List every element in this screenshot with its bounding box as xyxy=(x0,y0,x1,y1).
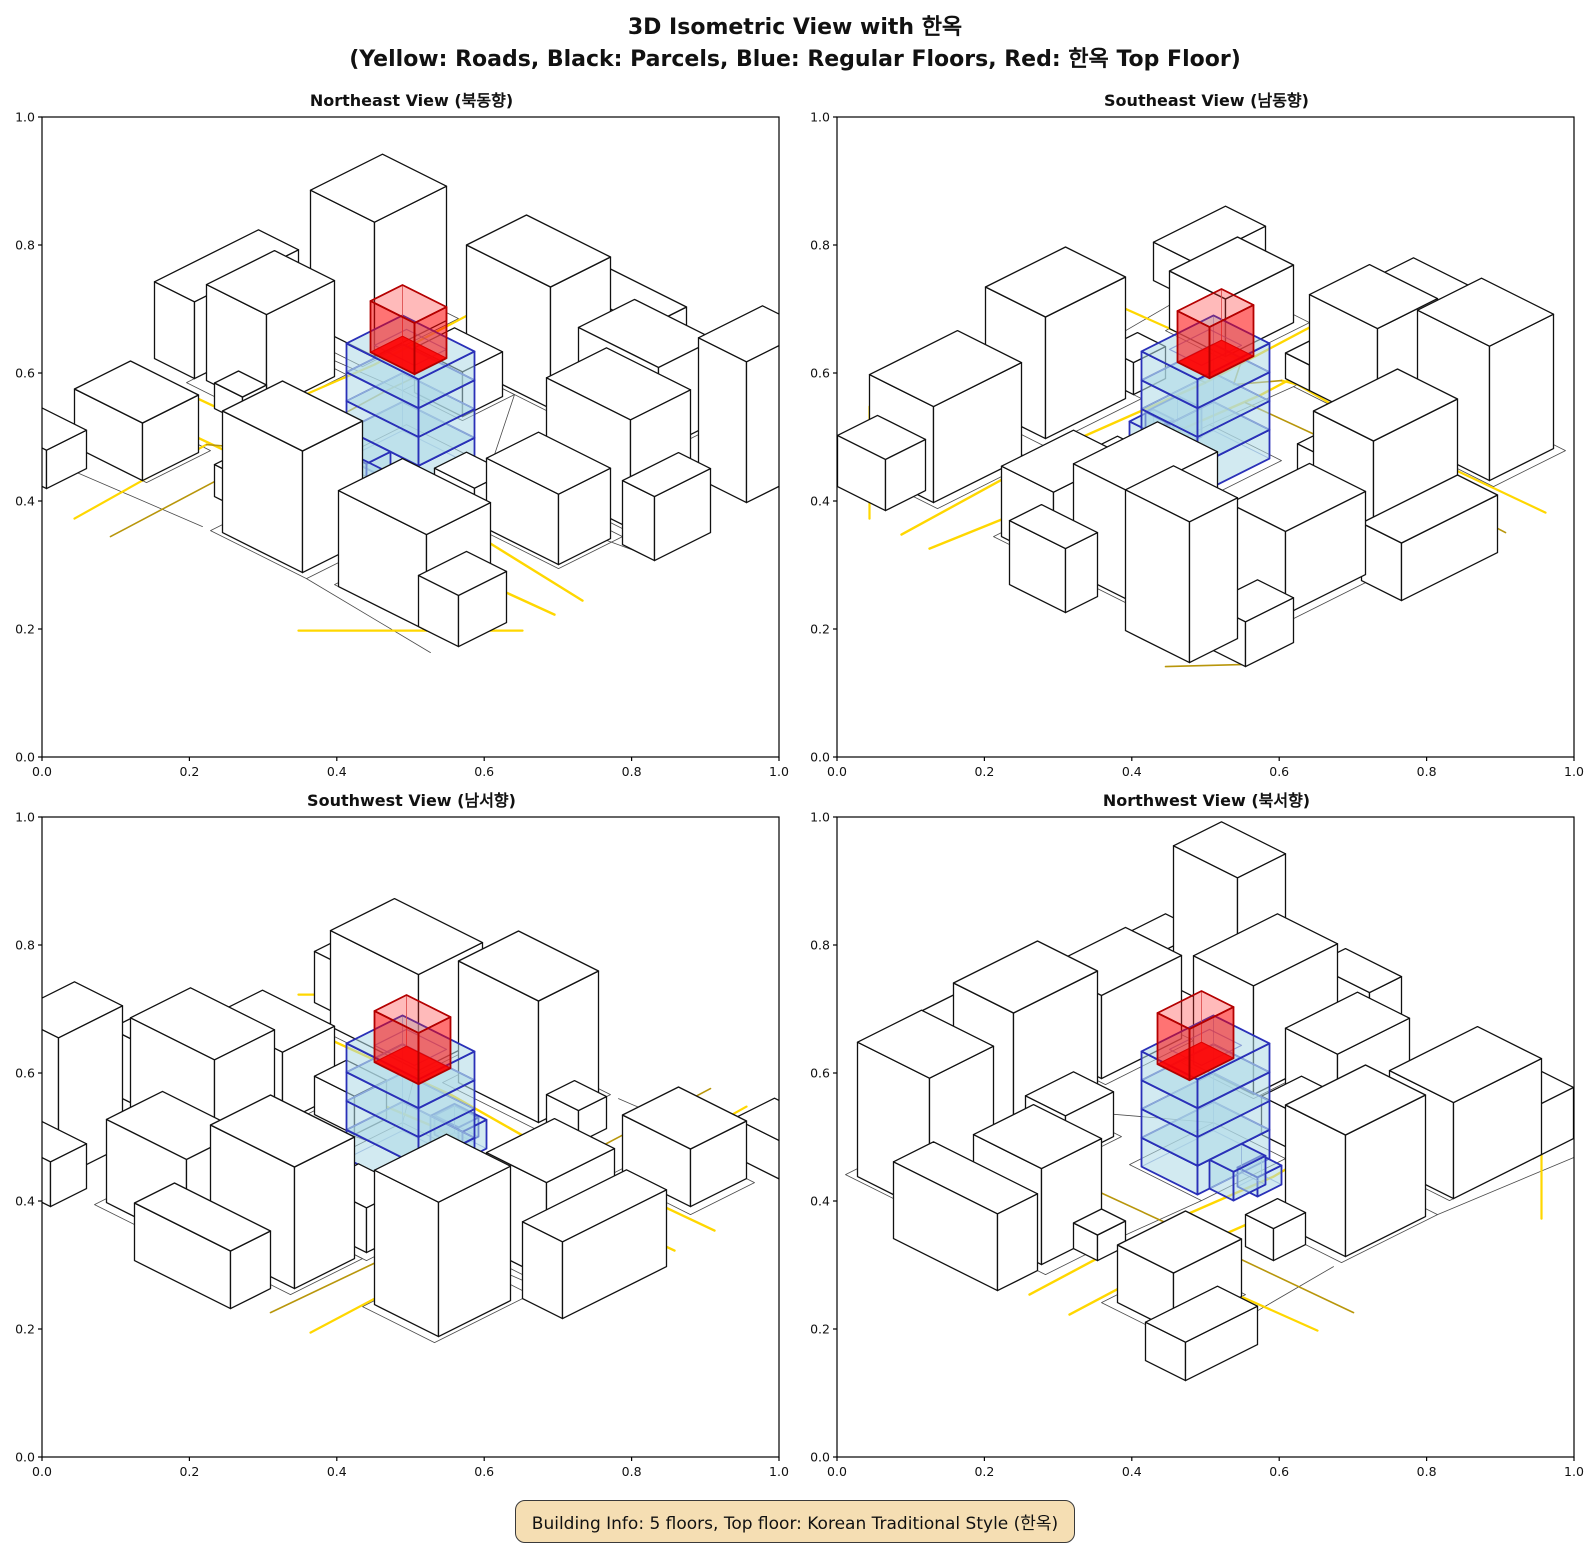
svg-text:1.0: 1.0 xyxy=(1564,764,1584,779)
view-svg-southwest: 0.00.00.20.20.40.40.60.60.80.81.01.0 xyxy=(0,812,795,1490)
figure: 3D Isometric View with 한옥 (Yellow: Roads… xyxy=(0,0,1590,1543)
svg-text:1.0: 1.0 xyxy=(810,112,830,125)
svg-text:0.8: 0.8 xyxy=(810,237,830,252)
svg-text:0.4: 0.4 xyxy=(810,1193,830,1208)
svg-text:0.2: 0.2 xyxy=(810,1321,830,1336)
svg-text:0.6: 0.6 xyxy=(1269,764,1289,779)
svg-text:0.8: 0.8 xyxy=(622,1464,642,1479)
svg-text:0.6: 0.6 xyxy=(1269,1464,1289,1479)
subplot-northwest: Northwest View (북서향) 0.00.00.20.20.40.40… xyxy=(795,790,1590,1490)
svg-text:0.6: 0.6 xyxy=(15,365,35,380)
svg-text:1.0: 1.0 xyxy=(769,1464,789,1479)
svg-text:0.4: 0.4 xyxy=(15,1193,35,1208)
svg-text:0.0: 0.0 xyxy=(810,749,830,764)
subplot-southwest: Southwest View (남서향) 0.00.00.20.20.40.40… xyxy=(0,790,795,1490)
svg-text:0.2: 0.2 xyxy=(179,1464,199,1479)
svg-text:0.0: 0.0 xyxy=(15,1449,35,1464)
svg-text:1.0: 1.0 xyxy=(810,812,830,825)
subplot-northeast: Northeast View (북동향) 0.00.00.20.20.40.40… xyxy=(0,90,795,790)
figure-title: 3D Isometric View with 한옥 (Yellow: Roads… xyxy=(0,0,1590,76)
svg-text:0.8: 0.8 xyxy=(15,937,35,952)
svg-text:0.6: 0.6 xyxy=(810,365,830,380)
svg-text:1.0: 1.0 xyxy=(15,812,35,825)
svg-text:0.8: 0.8 xyxy=(810,937,830,952)
svg-text:0.2: 0.2 xyxy=(810,621,830,636)
svg-text:0.0: 0.0 xyxy=(810,1449,830,1464)
svg-text:0.6: 0.6 xyxy=(474,1464,494,1479)
svg-text:1.0: 1.0 xyxy=(769,764,789,779)
building-info-box: Building Info: 5 floors, Top floor: Kore… xyxy=(515,1500,1075,1543)
svg-text:0.2: 0.2 xyxy=(179,764,199,779)
subplot-title-southwest: Southwest View (남서향) xyxy=(0,790,795,812)
svg-text:0.6: 0.6 xyxy=(15,1065,35,1080)
svg-text:0.4: 0.4 xyxy=(327,764,347,779)
view-svg-southeast: 0.00.00.20.20.40.40.60.60.80.81.01.0 xyxy=(795,112,1590,790)
view-svg-northwest: 0.00.00.20.20.40.40.60.60.80.81.01.0 xyxy=(795,812,1590,1490)
svg-text:0.0: 0.0 xyxy=(32,764,52,779)
svg-text:0.6: 0.6 xyxy=(810,1065,830,1080)
svg-text:0.0: 0.0 xyxy=(15,749,35,764)
svg-text:0.4: 0.4 xyxy=(810,493,830,508)
subplot-title-northeast: Northeast View (북동향) xyxy=(0,90,795,112)
svg-text:0.0: 0.0 xyxy=(827,1464,847,1479)
svg-text:0.2: 0.2 xyxy=(974,764,994,779)
svg-text:0.4: 0.4 xyxy=(15,493,35,508)
svg-text:0.4: 0.4 xyxy=(1122,764,1142,779)
subplot-southeast: Southeast View (남동향) 0.00.00.20.20.40.40… xyxy=(795,90,1590,790)
svg-text:1.0: 1.0 xyxy=(15,112,35,125)
svg-text:1.0: 1.0 xyxy=(1564,1464,1584,1479)
svg-text:0.8: 0.8 xyxy=(15,237,35,252)
figure-title-line1: 3D Isometric View with 한옥 xyxy=(0,12,1590,44)
svg-text:0.2: 0.2 xyxy=(15,621,35,636)
building-info-text: Building Info: 5 floors, Top floor: Kore… xyxy=(532,1514,1058,1534)
view-svg-northeast: 0.00.00.20.20.40.40.60.60.80.81.01.0 xyxy=(0,112,795,790)
svg-text:0.8: 0.8 xyxy=(1417,1464,1437,1479)
svg-text:0.0: 0.0 xyxy=(32,1464,52,1479)
subplot-title-southeast: Southeast View (남동향) xyxy=(795,90,1590,112)
svg-text:0.4: 0.4 xyxy=(327,1464,347,1479)
subplot-title-northwest: Northwest View (북서향) xyxy=(795,790,1590,812)
svg-text:0.0: 0.0 xyxy=(827,764,847,779)
svg-text:0.2: 0.2 xyxy=(15,1321,35,1336)
svg-text:0.4: 0.4 xyxy=(1122,1464,1142,1479)
figure-title-line2: (Yellow: Roads, Black: Parcels, Blue: Re… xyxy=(0,44,1590,76)
svg-text:0.8: 0.8 xyxy=(1417,764,1437,779)
svg-text:0.6: 0.6 xyxy=(474,764,494,779)
svg-text:0.8: 0.8 xyxy=(622,764,642,779)
svg-text:0.2: 0.2 xyxy=(974,1464,994,1479)
subplot-grid: Northeast View (북동향) 0.00.00.20.20.40.40… xyxy=(0,90,1590,1490)
